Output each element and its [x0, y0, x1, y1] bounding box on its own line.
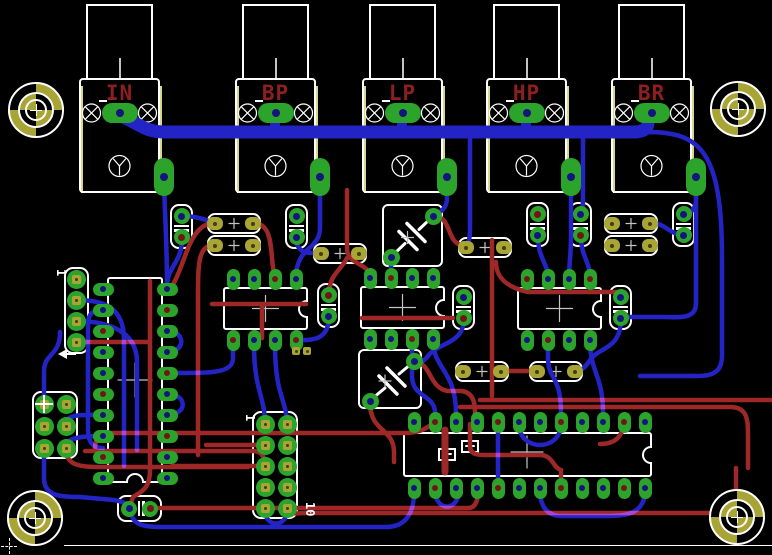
jack-label-IN[interactable]: IN: [79, 81, 160, 105]
hole-cross: [737, 511, 738, 523]
jack-label-LP[interactable]: LP: [362, 81, 443, 105]
pin1-label[interactable]: 1: [54, 269, 68, 283]
annotations-layer: INBPLPHPBR1110: [0, 0, 772, 555]
mounting-hole-bottom-right[interactable]: [709, 489, 765, 545]
mounting-hole-top-left[interactable]: [8, 82, 64, 138]
origin-marker-icon: [9, 538, 10, 554]
hole-cross: [738, 103, 739, 115]
pin1-label[interactable]: 1: [243, 414, 257, 428]
mounting-hole-top-right[interactable]: [710, 81, 766, 137]
pin1-marker-icon: [43, 395, 45, 413]
jack-label-BR[interactable]: BR: [611, 81, 692, 105]
mounting-hole-bottom-left[interactable]: [7, 490, 63, 546]
pin1-arrow-icon: [58, 349, 67, 359]
jack-label-BP[interactable]: BP: [235, 81, 316, 105]
pin10-label[interactable]: 10: [291, 502, 317, 516]
hole-cross: [35, 512, 36, 524]
jack-label-HP[interactable]: HP: [486, 81, 567, 105]
pcb-board-canvas: INBPLPHPBR1110: [0, 0, 772, 555]
pin1-arrow-icon: [67, 353, 76, 355]
hole-cross: [36, 104, 37, 116]
